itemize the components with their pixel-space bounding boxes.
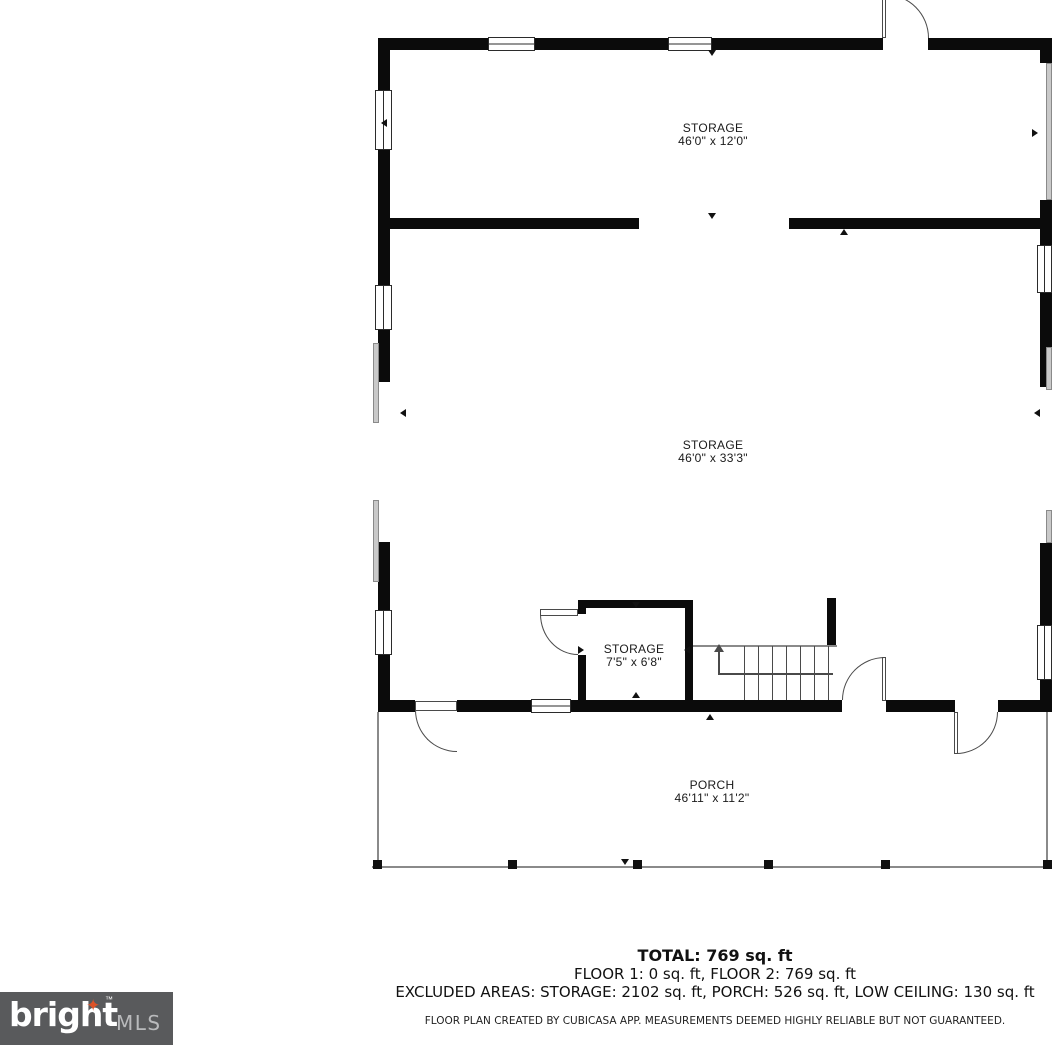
wall-segment: [378, 330, 390, 382]
window: [375, 285, 392, 330]
opening-strip: [373, 500, 379, 582]
total-area: TOTAL: 769 sq. ft: [378, 946, 1052, 965]
door-arc: [885, 0, 929, 38]
wall-segment: [928, 38, 1052, 50]
logo-suffix: MLS: [116, 1011, 162, 1035]
wall-segment: [998, 700, 1052, 712]
logo-wordmark: bright: [9, 995, 117, 1034]
bright-mls-logo: bright ✦ ™ MLS: [0, 992, 173, 1045]
opening-strip: [373, 343, 379, 423]
stairs-walkline: [718, 673, 833, 675]
wall-segment: [457, 700, 531, 712]
floor-areas: FLOOR 1: 0 sq. ft, FLOOR 2: 769 sq. ft: [378, 965, 1052, 983]
door-arc: [956, 712, 998, 754]
porch-post: [508, 860, 517, 869]
porch-edge: [377, 712, 379, 868]
porch-post: [633, 860, 642, 869]
floor-plan-page: STORAGE 46'0" x 12'0" STORAGE 46'0" x 33…: [0, 0, 1052, 1045]
stairs-walkline: [718, 652, 720, 674]
window: [1037, 245, 1052, 293]
wall-segment: [378, 38, 488, 50]
direction-marker: [1032, 129, 1038, 137]
direction-marker: [684, 646, 690, 654]
wall-segment: [827, 598, 836, 646]
direction-marker: [1034, 409, 1040, 417]
porch-post: [764, 860, 773, 869]
wall-segment: [378, 700, 415, 712]
direction-marker: [706, 714, 714, 720]
room-label-porch: PORCH 46'11" x 11'2": [612, 779, 812, 805]
wall-segment: [1040, 40, 1052, 63]
room-dimensions: 7'5" x 6'8": [584, 656, 684, 669]
wall-segment: [378, 40, 390, 90]
door-arc: [540, 614, 578, 655]
star-icon: ✦: [86, 996, 100, 1016]
wall-segment: [378, 542, 390, 610]
wall-segment: [789, 218, 1052, 229]
porch-edge: [1046, 712, 1048, 868]
window: [488, 37, 535, 51]
porch-post: [881, 860, 890, 869]
wall-segment: [578, 600, 586, 614]
room-label-storage-top: STORAGE 46'0" x 12'0": [613, 122, 813, 148]
room-label-storage-small: STORAGE 7'5" x 6'8": [584, 643, 684, 669]
direction-marker: [632, 602, 640, 608]
window: [668, 37, 712, 51]
wall-segment: [886, 700, 955, 712]
window: [531, 699, 571, 713]
porch-post: [1043, 860, 1052, 869]
direction-marker: [708, 50, 716, 56]
wall-segment: [712, 38, 883, 50]
window: [375, 610, 392, 655]
wall-segment: [378, 229, 390, 285]
direction-marker: [632, 692, 640, 698]
wall-segment: [535, 38, 668, 50]
direction-marker: [621, 859, 629, 865]
room-dimensions: 46'0" x 12'0": [613, 135, 813, 148]
direction-marker: [381, 119, 387, 127]
porch-post: [373, 860, 382, 869]
direction-marker: [708, 213, 716, 219]
window: [1037, 625, 1052, 680]
opening-strip: [1046, 347, 1052, 390]
porch-edge: [372, 866, 1052, 868]
wall-segment: [378, 218, 639, 229]
direction-marker: [840, 229, 848, 235]
disclaimer: FLOOR PLAN CREATED BY CUBICASA APP. MEAS…: [378, 1015, 1052, 1028]
wall-segment: [571, 700, 842, 712]
door-arc: [415, 710, 457, 752]
excluded-areas: EXCLUDED AREAS: STORAGE: 2102 sq. ft, PO…: [378, 983, 1052, 1001]
area-summary: TOTAL: 769 sq. ft FLOOR 1: 0 sq. ft, FLO…: [378, 946, 1052, 1028]
wall-segment: [1040, 543, 1052, 625]
room-dimensions: 46'11" x 11'2": [612, 792, 812, 805]
opening-strip: [1046, 63, 1052, 200]
stairs-up-arrow-icon: [714, 644, 724, 652]
direction-marker: [400, 409, 406, 417]
room-label-storage-main: STORAGE 46'0" x 33'3": [613, 439, 813, 465]
opening-strip: [1046, 510, 1052, 543]
trademark-symbol: ™: [105, 995, 113, 1004]
room-dimensions: 46'0" x 33'3": [613, 452, 813, 465]
door-arc: [842, 657, 885, 700]
wall-segment: [378, 150, 390, 218]
